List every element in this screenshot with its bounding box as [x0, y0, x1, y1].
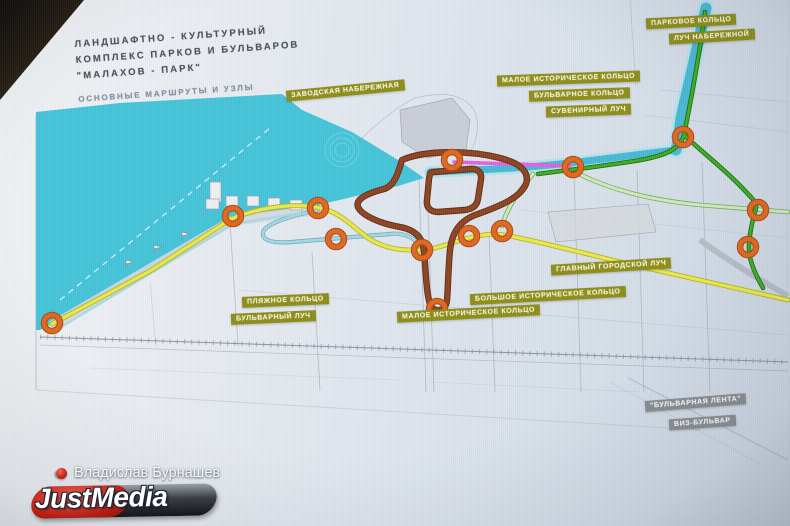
watermark-author: Владислав Бурнашев [56, 465, 220, 481]
photo-of-presentation-screen: ЗАВОДСКАЯ НАБЕРЕЖНАЯМАЛОЕ ИСТОРИЧЕСКОЕ К… [0, 0, 790, 526]
justmedia-logo: JustMedia [26, 483, 222, 519]
logo-text: JustMedia [35, 481, 168, 515]
red-dot-icon [56, 468, 67, 479]
railway-line [40, 337, 788, 371]
author-name: Владислав Бурнашев [74, 465, 220, 481]
